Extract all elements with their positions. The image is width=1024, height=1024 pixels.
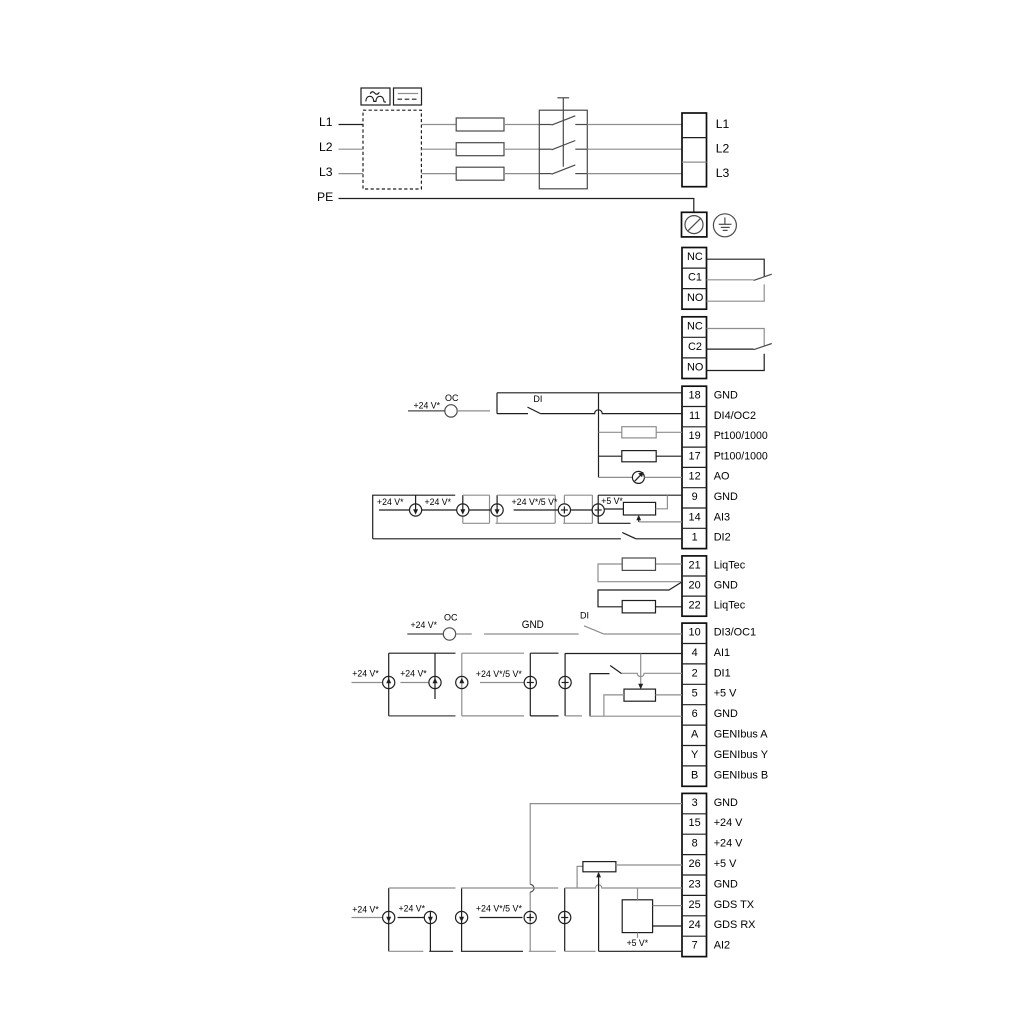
svg-text:NO: NO xyxy=(687,361,703,373)
svg-text:GENIbus A: GENIbus A xyxy=(714,729,769,741)
svg-text:20: 20 xyxy=(689,579,701,591)
svg-text:+24 V*: +24 V* xyxy=(414,400,441,411)
svg-text:PE: PE xyxy=(317,190,333,204)
svg-text:L2: L2 xyxy=(716,142,730,156)
svg-text:GENIbus B: GENIbus B xyxy=(714,769,768,781)
svg-text:OC: OC xyxy=(445,393,459,404)
svg-text:GDS RX: GDS RX xyxy=(714,919,756,931)
svg-text:12: 12 xyxy=(689,471,701,483)
svg-text:+24 V*/5 V*: +24 V*/5 V* xyxy=(476,903,522,914)
svg-text:NC: NC xyxy=(687,251,703,263)
svg-text:+5 V: +5 V xyxy=(714,688,737,700)
svg-text:+24 V*/5 V*: +24 V*/5 V* xyxy=(512,497,558,508)
svg-text:+5 V*: +5 V* xyxy=(627,938,649,949)
svg-text:LiqTec: LiqTec xyxy=(714,600,746,612)
svg-text:GND: GND xyxy=(714,390,738,402)
svg-text:C2: C2 xyxy=(688,341,702,353)
svg-text:NC: NC xyxy=(687,320,703,332)
svg-text:15: 15 xyxy=(689,817,701,829)
svg-text:9: 9 xyxy=(692,491,698,503)
svg-text:+24 V*: +24 V* xyxy=(377,497,404,508)
svg-text:+24 V: +24 V xyxy=(714,817,743,829)
svg-text:+24 V*: +24 V* xyxy=(352,669,379,680)
svg-text:GND: GND xyxy=(714,491,738,503)
svg-text:+5 V*: +5 V* xyxy=(601,496,623,507)
svg-text:C1: C1 xyxy=(688,272,702,284)
svg-text:L1: L1 xyxy=(319,115,333,129)
svg-text:L2: L2 xyxy=(319,140,333,154)
svg-text:+24 V*: +24 V* xyxy=(425,497,452,508)
svg-text:DI1: DI1 xyxy=(714,667,731,679)
svg-text:AI3: AI3 xyxy=(714,511,730,523)
svg-text:22: 22 xyxy=(689,600,701,612)
svg-text:A: A xyxy=(691,729,699,741)
svg-text:19: 19 xyxy=(689,430,701,442)
svg-text:DI4/OC2: DI4/OC2 xyxy=(714,410,756,422)
svg-text:+24 V*: +24 V* xyxy=(411,620,438,631)
svg-text:21: 21 xyxy=(689,559,701,571)
svg-text:B: B xyxy=(691,769,698,781)
svg-text:LiqTec: LiqTec xyxy=(714,559,746,571)
svg-text:GND: GND xyxy=(714,579,738,591)
svg-text:25: 25 xyxy=(689,899,701,911)
svg-text:DI: DI xyxy=(580,610,589,621)
svg-text:GENIbus Y: GENIbus Y xyxy=(714,749,769,761)
svg-text:GND: GND xyxy=(714,708,738,720)
svg-text:Pt100/1000: Pt100/1000 xyxy=(714,430,768,442)
svg-text:DI3/OC1: DI3/OC1 xyxy=(714,627,756,639)
svg-text:7: 7 xyxy=(692,940,698,952)
svg-text:24: 24 xyxy=(689,919,701,931)
svg-text:18: 18 xyxy=(689,390,701,402)
svg-text:2: 2 xyxy=(692,667,698,679)
svg-text:Pt100/1000: Pt100/1000 xyxy=(714,450,768,462)
svg-text:+5 V: +5 V xyxy=(714,858,737,870)
svg-text:11: 11 xyxy=(689,410,700,422)
svg-text:4: 4 xyxy=(692,647,698,659)
svg-text:14: 14 xyxy=(689,511,701,523)
svg-text:26: 26 xyxy=(689,858,701,870)
svg-text:AI1: AI1 xyxy=(714,647,730,659)
svg-text:L1: L1 xyxy=(716,117,730,131)
svg-text:8: 8 xyxy=(692,838,698,850)
svg-text:+24 V*: +24 V* xyxy=(400,669,427,680)
svg-text:Y: Y xyxy=(691,749,699,761)
svg-text:OC: OC xyxy=(444,613,458,624)
svg-text:+24 V*: +24 V* xyxy=(352,905,379,916)
svg-text:GND: GND xyxy=(522,619,544,631)
svg-text:NO: NO xyxy=(687,292,703,304)
svg-text:L3: L3 xyxy=(319,165,333,179)
svg-text:L3: L3 xyxy=(716,166,730,180)
svg-text:GND: GND xyxy=(714,878,738,890)
svg-text:AI2: AI2 xyxy=(714,940,730,952)
svg-text:5: 5 xyxy=(692,688,698,700)
svg-text:+24 V*: +24 V* xyxy=(399,903,426,914)
svg-text:23: 23 xyxy=(689,878,701,890)
svg-text:3: 3 xyxy=(692,797,698,809)
svg-text:6: 6 xyxy=(692,708,698,720)
svg-text:GND: GND xyxy=(714,797,738,809)
svg-text:DI2: DI2 xyxy=(714,532,731,544)
svg-text:17: 17 xyxy=(689,450,701,462)
svg-text:+24 V: +24 V xyxy=(714,838,743,850)
svg-text:DI: DI xyxy=(533,394,542,405)
svg-text:1: 1 xyxy=(692,532,698,544)
svg-text:+24 V*/5 V*: +24 V*/5 V* xyxy=(476,669,522,680)
svg-text:AO: AO xyxy=(714,471,730,483)
svg-text:10: 10 xyxy=(689,627,701,639)
svg-text:GDS TX: GDS TX xyxy=(714,899,755,911)
